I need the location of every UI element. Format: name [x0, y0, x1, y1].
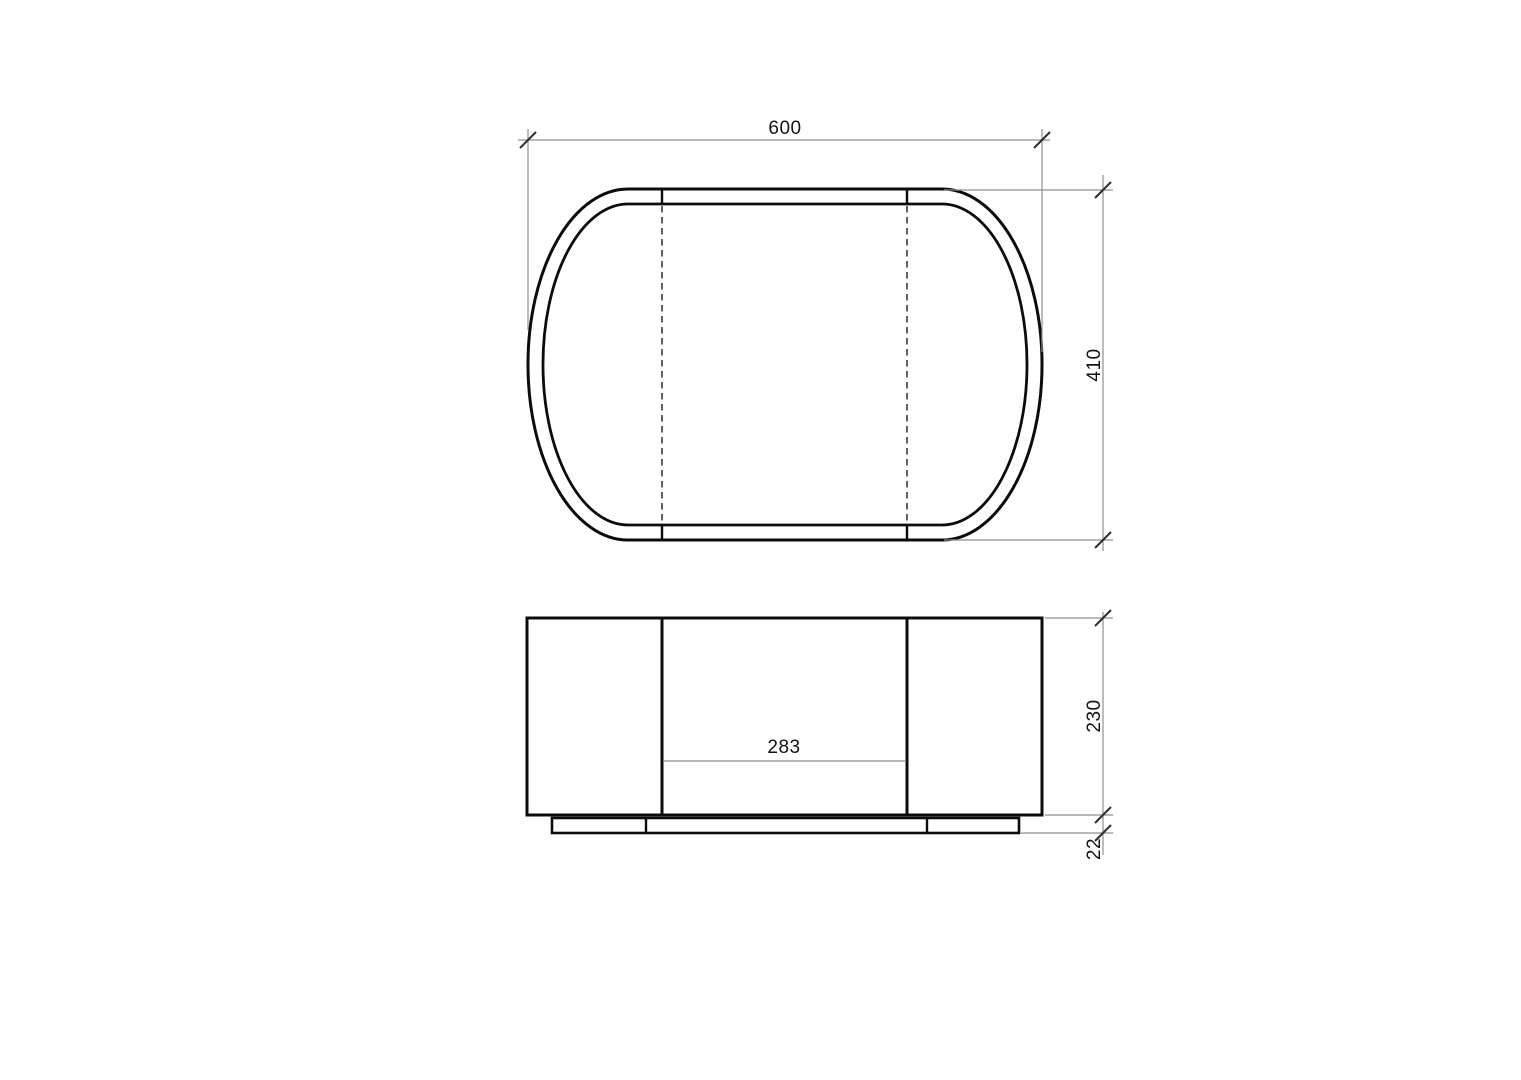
drawing-canvas: 600 410 283 — [0, 0, 1521, 1080]
dimension-label-opening-width: 283 — [767, 737, 800, 758]
dimension-label-top-depth: 410 — [1084, 348, 1105, 381]
front-view — [527, 618, 1042, 833]
top-view — [528, 188, 1042, 541]
top-view-inner-outline — [543, 204, 1027, 525]
dimension-label-body-height: 230 — [1084, 699, 1105, 732]
top-view-outer-outline — [528, 189, 1042, 540]
front-view-body — [527, 618, 1042, 815]
plinth — [552, 818, 1019, 833]
dimension-label-plinth-height: 22 — [1084, 838, 1105, 860]
dimension-top-depth: 410 — [944, 175, 1113, 551]
furniture-technical-drawing: 600 410 283 — [0, 0, 1521, 1080]
dimension-label-top-width: 600 — [768, 118, 801, 139]
dimension-top-width: 600 — [518, 118, 1050, 352]
